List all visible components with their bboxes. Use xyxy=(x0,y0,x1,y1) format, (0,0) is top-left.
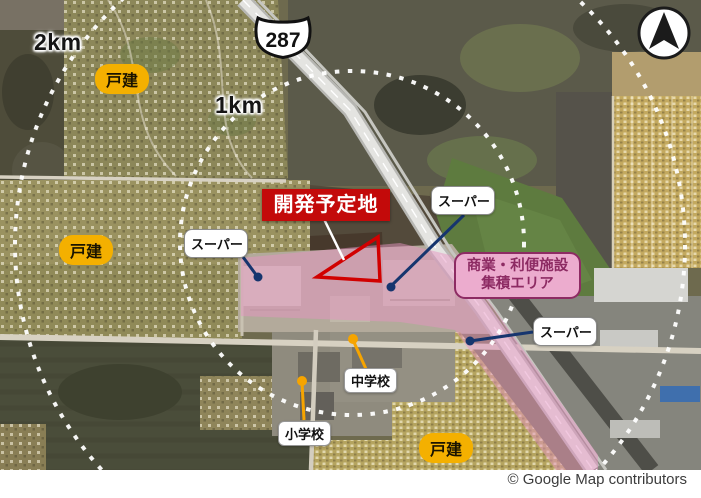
supermarket-label: スーパー xyxy=(533,317,597,346)
development-site-label: 開発予定地 xyxy=(262,189,390,221)
supermarket-label: スーパー xyxy=(431,186,495,215)
satellite-map: 287 2km 1km 開発予定地 商業・利便施設 集積エリア スーパー スーパ… xyxy=(0,0,701,470)
commercial-area-label: 商業・利便施設 集積エリア xyxy=(454,252,581,299)
map-copyright: © Google Map contributors xyxy=(508,471,687,488)
highway-shield-number: 287 xyxy=(265,29,300,52)
detached-housing-badge: 戸建 xyxy=(95,64,149,94)
commercial-area-label-line1: 商業・利便施設 xyxy=(456,258,579,276)
us-route-shield-icon: 287 xyxy=(256,18,310,58)
detached-housing-badge: 戸建 xyxy=(419,433,473,463)
location-map-figure: 287 2km 1km 開発予定地 商業・利便施設 集積エリア スーパー スーパ… xyxy=(0,0,701,498)
supermarket-label: スーパー xyxy=(184,229,248,258)
commercial-area-label-line2: 集積エリア xyxy=(456,276,579,294)
distance-label-2km: 2km xyxy=(34,29,82,56)
distance-label-1km: 1km xyxy=(215,92,263,119)
detached-housing-badge: 戸建 xyxy=(59,235,113,265)
elementary-school-label: 小学校 xyxy=(278,421,331,446)
junior-high-school-label: 中学校 xyxy=(344,368,397,393)
north-arrow-icon xyxy=(639,8,689,58)
